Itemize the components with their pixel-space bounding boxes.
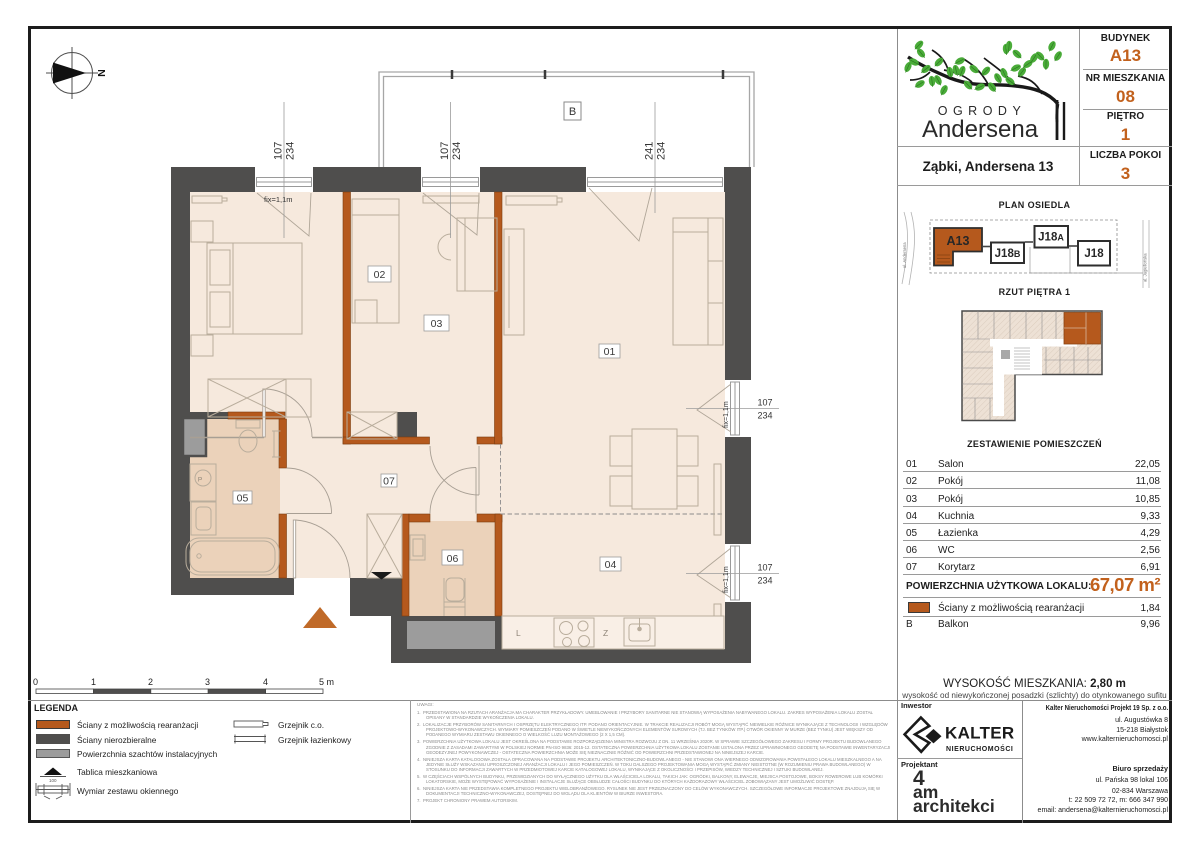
svg-text:241: 241 (644, 142, 656, 160)
svg-text:01: 01 (604, 346, 616, 358)
svg-text:234: 234 (285, 142, 297, 160)
svg-text:fix=1,1m: fix=1,1m (723, 566, 730, 593)
svg-text:234: 234 (656, 142, 668, 160)
svg-text:L: L (516, 628, 521, 638)
svg-text:07: 07 (383, 476, 395, 488)
svg-text:107: 107 (439, 142, 451, 160)
svg-text:ul. Andersena: ul. Andersena (902, 242, 907, 268)
svg-text:J18A: J18A (1038, 232, 1064, 244)
svg-text:A13: A13 (947, 234, 970, 248)
svg-text:05: 05 (237, 493, 249, 505)
svg-text:107: 107 (757, 398, 772, 408)
svg-text:234: 234 (451, 142, 463, 160)
svg-text:al. Jagiellońska: al. Jagiellońska (1143, 253, 1148, 282)
svg-text:04: 04 (605, 559, 617, 571)
svg-text:234: 234 (757, 576, 772, 586)
svg-text:B: B (569, 106, 576, 118)
svg-text:03: 03 (431, 318, 443, 330)
svg-text:234: 234 (757, 411, 772, 421)
svg-text:N: N (95, 69, 107, 77)
svg-text:P: P (198, 477, 202, 484)
svg-text:02: 02 (374, 269, 386, 281)
svg-text:fix=1,1m: fix=1,1m (723, 401, 730, 428)
svg-text:J18B: J18B (995, 248, 1021, 260)
svg-text:107: 107 (273, 142, 285, 160)
svg-text:06: 06 (447, 553, 459, 565)
svg-text:fix=1,1m: fix=1,1m (264, 195, 293, 204)
svg-text:100: 100 (49, 778, 57, 783)
svg-text:107: 107 (757, 563, 772, 573)
svg-text:J18: J18 (1084, 248, 1104, 260)
svg-text:Z: Z (603, 628, 608, 638)
